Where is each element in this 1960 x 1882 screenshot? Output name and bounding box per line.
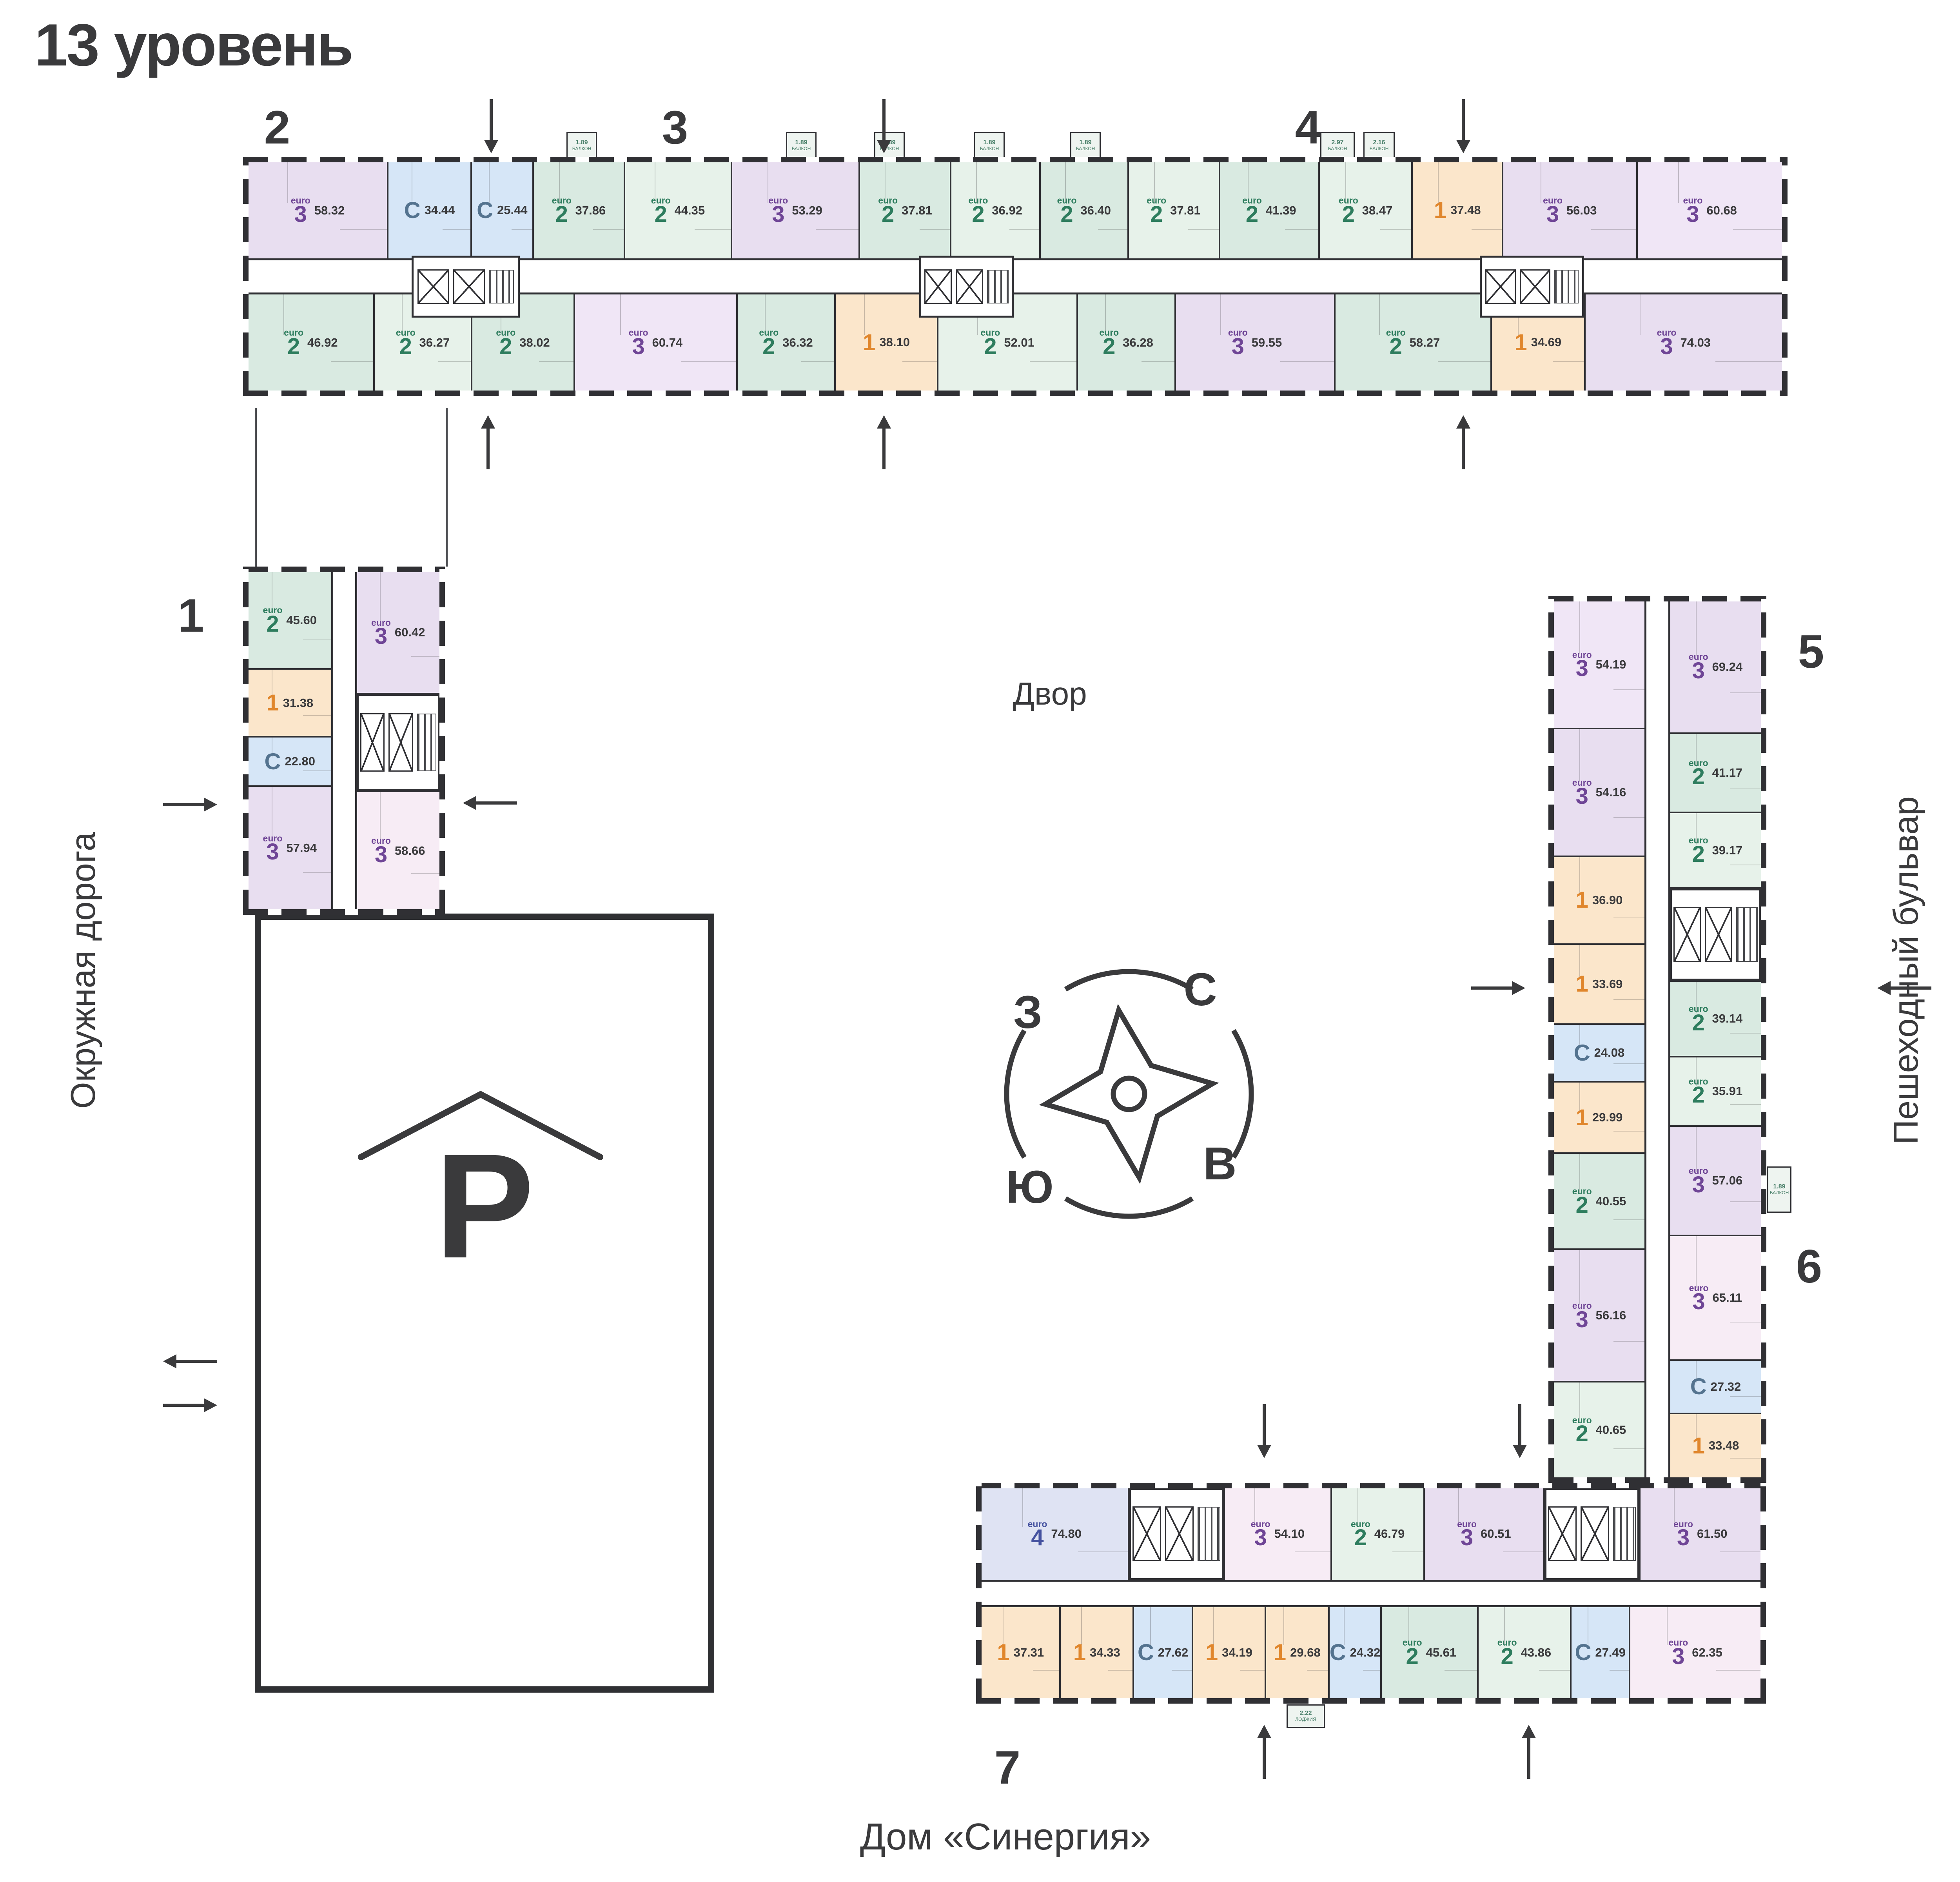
wing-connector-outline [255, 408, 448, 567]
apartment-type: 3 [1660, 337, 1673, 356]
apartment-label: euro246.79 [1351, 1520, 1405, 1548]
stair-core [412, 256, 520, 318]
apartment-label: euro236.40 [1057, 197, 1111, 224]
apartment-row: euro360.42euro358.66 [357, 572, 440, 909]
entrance-arrow-up [881, 415, 887, 469]
apartment-type: 3 [1692, 1292, 1705, 1311]
apartment-label: euro238.02 [496, 329, 550, 356]
apartment-label: 133.48 [1692, 1436, 1739, 1455]
apartment-area: 60.42 [395, 625, 425, 639]
apartment-area: 38.02 [519, 336, 550, 350]
apartment-area: 36.90 [1592, 893, 1623, 907]
section-number-3: 3 [662, 100, 688, 154]
apartment-unit[interactable]: euro354.10 [1225, 1488, 1330, 1580]
entrance-arrow-down [1517, 1404, 1523, 1458]
apartment-type: 3 [375, 845, 387, 864]
apartment-unit[interactable]: euro240.65 [1554, 1382, 1644, 1477]
apartment-unit[interactable]: euro237.81 [860, 162, 950, 258]
apartment-type: С [1330, 1643, 1346, 1662]
apartment-unit[interactable]: euro258.27 [1336, 294, 1490, 391]
apartment-unit[interactable]: 137.48 [1413, 162, 1502, 258]
apartment-area: 52.01 [1004, 336, 1034, 350]
section-number-1: 1 [178, 589, 204, 643]
apartment-area: 40.65 [1596, 1423, 1626, 1437]
apartment-label: euro357.94 [263, 835, 317, 862]
apartment-type: С [1138, 1643, 1154, 1662]
apartment-unit[interactable]: euro239.17 [1670, 813, 1761, 887]
apartment-unit[interactable]: euro361.50 [1641, 1488, 1760, 1580]
apartment-area: 65.11 [1712, 1291, 1742, 1305]
apartment-type: 2 [1692, 845, 1705, 864]
apartment-label: euro236.27 [396, 329, 450, 356]
apartment-area: 37.48 [1450, 203, 1481, 217]
courtyard-label: Двор [1013, 676, 1087, 712]
apartment-unit[interactable]: euro243.86 [1479, 1607, 1570, 1699]
apartment-label: euro369.24 [1689, 653, 1742, 680]
apartment-type: 3 [1576, 787, 1588, 806]
apartment-type: 3 [1576, 659, 1588, 678]
apartment-area: 45.60 [286, 613, 317, 627]
apartment-area: 36.27 [419, 336, 450, 350]
apartment-unit[interactable]: euro236.28 [1078, 294, 1174, 391]
entrance-arrow-left [463, 800, 517, 806]
apartment-label: 137.31 [997, 1643, 1044, 1662]
apartment-unit[interactable]: С25.44 [472, 162, 532, 258]
apartment-type: С [1690, 1377, 1707, 1396]
exterior-wall [243, 909, 445, 915]
apartment-label: euro239.17 [1689, 837, 1742, 864]
compass-east-label: В [1203, 1137, 1236, 1190]
stair-core [919, 256, 1014, 318]
apartment-unit[interactable]: euro374.03 [1586, 294, 1782, 391]
apartment-unit[interactable]: euro235.91 [1670, 1057, 1761, 1125]
apartment-area: 38.10 [879, 335, 910, 349]
apartment-label: С34.44 [404, 201, 455, 220]
apartment-area: 60.68 [1706, 203, 1737, 218]
apartment-area: 24.32 [1350, 1646, 1381, 1660]
elevator-icon [1132, 1506, 1161, 1561]
apartment-type: 2 [266, 614, 279, 634]
apartment-area: 34.33 [1090, 1646, 1120, 1660]
apartment-unit[interactable]: 136.90 [1554, 857, 1644, 943]
apartment-type: С [404, 201, 421, 220]
apartment-unit[interactable]: С34.44 [388, 162, 470, 258]
balcony: 1.89БАЛКОН [974, 132, 1005, 159]
apartment-unit[interactable]: 134.33 [1061, 1607, 1132, 1699]
apartment-type: С [1574, 1043, 1590, 1063]
apartment-unit[interactable]: euro240.55 [1554, 1154, 1644, 1248]
wing-right: euro354.19euro354.16136.90133.69С24.0812… [1548, 596, 1766, 1483]
parking-icon: Р [435, 1132, 534, 1281]
apartment-area: 43.86 [1521, 1646, 1552, 1660]
apartment-label: euro358.66 [371, 837, 425, 864]
apartment-area: 54.10 [1274, 1527, 1305, 1541]
apartment-area: 45.61 [1426, 1646, 1457, 1660]
compass-hub [1113, 1078, 1145, 1110]
exterior-wall [976, 1698, 1766, 1704]
apartment-label: euro356.16 [1572, 1302, 1626, 1329]
apartment-area: 36.28 [1123, 336, 1153, 350]
exterior-wall [1548, 596, 1554, 1483]
apartment-unit[interactable]: 129.68 [1266, 1607, 1328, 1699]
apartment-label: euro241.39 [1242, 197, 1296, 224]
apartment-type: 3 [632, 337, 645, 356]
apartment-area: 56.03 [1566, 203, 1597, 218]
section-number-6: 6 [1796, 1239, 1822, 1293]
apartment-type: 2 [499, 337, 512, 356]
stairs-icon [1554, 270, 1579, 303]
apartment-label: 129.99 [1576, 1108, 1623, 1127]
apartment-unit[interactable]: euro474.80 [982, 1488, 1128, 1580]
apartment-unit[interactable]: euro358.32 [249, 162, 387, 258]
balcony-word: БАЛКОН [572, 146, 592, 151]
stairs-icon [417, 714, 436, 771]
apartment-unit[interactable]: euro360.68 [1638, 162, 1782, 258]
apartment-unit[interactable]: euro360.42 [357, 572, 440, 693]
entrance-arrow-up [1526, 1725, 1532, 1779]
apartment-type: 2 [762, 337, 775, 356]
apartment-unit[interactable]: euro237.81 [1129, 162, 1219, 258]
apartment-label: euro354.10 [1251, 1520, 1305, 1548]
apartment-type: 2 [1692, 1013, 1705, 1032]
apartment-type: 3 [375, 627, 387, 646]
apartment-label: С22.80 [265, 752, 315, 771]
entrance-arrow-right [163, 801, 217, 808]
exterior-wall [1782, 157, 1788, 396]
section-number-2: 2 [264, 100, 290, 154]
apartment-label: euro354.19 [1572, 651, 1626, 678]
apartment-area: 46.92 [307, 336, 338, 350]
street-label-left: Окружная дорога [63, 832, 103, 1109]
apartment-unit[interactable]: euro356.03 [1503, 162, 1636, 258]
apartment-label: 134.33 [1073, 1643, 1120, 1662]
apartment-label: 134.69 [1514, 333, 1561, 352]
balcony-area: 1.89 [795, 140, 807, 146]
apartment-unit[interactable]: euro360.74 [575, 294, 736, 391]
section-number-4: 4 [1295, 100, 1321, 154]
apartment-type: 2 [1576, 1195, 1588, 1215]
apartment-label: euro365.11 [1689, 1284, 1742, 1312]
apartment-row: euro474.80euro354.10euro246.79euro360.51… [982, 1488, 1760, 1580]
entrance-arrow-up [1261, 1725, 1267, 1779]
apartment-type: 4 [1031, 1528, 1044, 1547]
apartment-area: 33.48 [1709, 1439, 1739, 1453]
apartment-unit[interactable]: euro236.92 [951, 162, 1039, 258]
apartment-label: euro246.92 [284, 329, 338, 356]
wing-left: euro245.60131.38С22.80euro357.94euro360.… [243, 567, 445, 915]
corridor [1644, 601, 1670, 1477]
balcony-word: БАЛКОН [1370, 146, 1389, 151]
apartment-unit[interactable]: С22.80 [249, 738, 331, 786]
balcony-area: 1.89 [1773, 1184, 1785, 1190]
apartment-type: С [1575, 1643, 1591, 1662]
apartment-area: 22.80 [285, 754, 315, 768]
apartment-label: 129.68 [1274, 1643, 1321, 1662]
elevator-icon [924, 269, 952, 304]
apartment-area: 60.51 [1481, 1527, 1511, 1541]
apartment-label: euro362.35 [1668, 1639, 1722, 1666]
apartment-label: euro357.06 [1689, 1167, 1742, 1194]
apartment-area: 41.17 [1712, 766, 1743, 780]
apartment-label: euro360.42 [371, 619, 425, 646]
apartment-unit[interactable]: euro245.61 [1382, 1607, 1477, 1699]
apartment-type: 3 [772, 205, 784, 224]
balcony: 2.22ЛОДЖИЯ [1287, 1704, 1325, 1728]
corridor [982, 1580, 1760, 1607]
apartment-type: С [477, 201, 493, 220]
entrance-arrow-left [1877, 985, 1931, 991]
balcony-word: БАЛКОН [980, 146, 999, 151]
apartment-area: 24.08 [1594, 1046, 1625, 1060]
apartment-area: 29.99 [1592, 1110, 1623, 1124]
balcony-area: 1.89 [575, 140, 588, 146]
apartment-unit[interactable]: euro354.16 [1554, 729, 1644, 856]
apartment-unit[interactable]: euro245.60 [249, 572, 331, 668]
apartment-type: 1 [1274, 1643, 1286, 1662]
exterior-wall [1548, 1477, 1766, 1483]
balcony-word: БАЛКОН [792, 146, 811, 151]
apartment-type: 2 [1103, 337, 1115, 356]
apartment-unit[interactable]: С24.08 [1554, 1025, 1644, 1081]
exterior-wall [1761, 596, 1766, 1483]
apartment-unit[interactable]: 133.69 [1554, 945, 1644, 1023]
apartment-area: 39.17 [1712, 843, 1743, 857]
apartment-label: euro361.50 [1673, 1520, 1727, 1548]
apartment-label: euro239.14 [1689, 1005, 1742, 1032]
balcony: 1.89БАЛКОН [1767, 1166, 1791, 1213]
exterior-wall [243, 157, 1788, 162]
apartment-type: 2 [287, 337, 300, 356]
apartment-unit[interactable]: 133.48 [1670, 1414, 1761, 1477]
compass-south-label: Ю [1006, 1161, 1054, 1214]
apartment-unit[interactable]: С27.32 [1670, 1361, 1761, 1413]
apartment-type: 3 [1677, 1528, 1690, 1547]
apartment-type: 2 [1060, 205, 1073, 224]
apartment-unit[interactable]: euro237.86 [534, 162, 624, 258]
apartment-type: 2 [1501, 1647, 1514, 1666]
apartment-label: euro359.55 [1228, 329, 1282, 356]
apartment-area: 69.24 [1712, 660, 1743, 674]
apartment-label: 134.19 [1205, 1643, 1252, 1662]
apartment-area: 40.55 [1596, 1194, 1626, 1208]
page-title: 13 уровень [34, 11, 352, 80]
apartment-unit[interactable]: С27.62 [1134, 1607, 1192, 1699]
apartment-type: 2 [1342, 205, 1355, 224]
balcony: 2.16БАЛКОН [1363, 132, 1395, 159]
apartment-label: euro240.55 [1572, 1188, 1626, 1215]
apartment-unit[interactable]: euro244.35 [625, 162, 731, 258]
apartment-label: euro245.60 [263, 607, 317, 634]
apartment-row: euro369.24euro241.17euro239.17euro239.14… [1670, 601, 1761, 1477]
apartment-unit[interactable]: euro236.32 [738, 294, 834, 391]
apartment-area: 34.19 [1222, 1646, 1252, 1660]
apartment-unit[interactable]: euro357.94 [249, 787, 331, 909]
stair-core [1545, 1488, 1639, 1580]
apartment-unit[interactable]: euro362.35 [1630, 1607, 1760, 1699]
apartment-unit[interactable]: euro360.51 [1425, 1488, 1543, 1580]
apartment-area: 37.81 [902, 203, 932, 218]
apartment-unit[interactable]: 134.19 [1193, 1607, 1265, 1699]
exterior-wall [243, 391, 1788, 396]
entrance-arrow-left [163, 1358, 217, 1364]
apartment-label: euro258.27 [1386, 329, 1440, 356]
apartment-type: 3 [266, 842, 279, 861]
apartment-type: С [265, 752, 281, 771]
exterior-wall [243, 157, 249, 396]
apartment-area: 36.32 [782, 336, 813, 350]
apartment-unit[interactable]: 129.99 [1554, 1083, 1644, 1152]
elevator-icon [1485, 269, 1516, 304]
apartment-label: 137.48 [1434, 201, 1481, 220]
apartment-type: 2 [972, 205, 984, 224]
balcony: 1.89БАЛКОН [1070, 132, 1101, 159]
apartment-label: euro360.51 [1457, 1520, 1511, 1548]
apartment-area: 35.91 [1712, 1084, 1743, 1098]
apartment-type: 1 [863, 333, 875, 352]
elevator-icon [1673, 907, 1701, 962]
apartment-label: euro236.32 [759, 329, 813, 356]
apartment-unit[interactable]: euro356.16 [1554, 1250, 1644, 1381]
apartment-unit[interactable]: euro357.06 [1670, 1127, 1761, 1235]
entrance-arrow-down [1460, 99, 1466, 153]
apartment-type: 2 [555, 205, 568, 224]
balcony-area: 1.89 [983, 140, 995, 146]
apartment-label: euro354.16 [1572, 779, 1626, 806]
entrance-arrow-up [1460, 415, 1466, 469]
apartment-unit[interactable]: С24.32 [1330, 1607, 1380, 1699]
apartment-area: 54.19 [1596, 658, 1626, 672]
apartment-unit[interactable]: 131.38 [249, 670, 331, 736]
apartment-unit[interactable]: euro354.19 [1554, 601, 1644, 728]
section-number-5: 5 [1798, 625, 1824, 679]
balcony-word: БАЛКОН [1328, 146, 1347, 151]
apartment-label: euro236.92 [969, 197, 1022, 224]
balcony-area: 2.97 [1331, 140, 1343, 146]
apartment-unit[interactable]: euro241.17 [1670, 734, 1761, 812]
building-name-label: Дом «Синергия» [860, 1815, 1151, 1858]
apartment-type: 2 [984, 337, 996, 356]
apartment-area: 39.14 [1712, 1012, 1743, 1026]
apartment-type: 2 [399, 337, 412, 356]
apartment-area: 58.32 [314, 203, 345, 218]
apartment-area: 27.62 [1158, 1646, 1189, 1660]
apartment-area: 57.94 [286, 841, 317, 855]
stairs-icon [1736, 907, 1758, 962]
apartment-type: 1 [1514, 333, 1527, 352]
apartment-label: С24.08 [1574, 1043, 1624, 1063]
apartment-unit[interactable]: euro365.11 [1670, 1236, 1761, 1359]
apartment-type: 2 [1390, 337, 1402, 356]
apartment-unit[interactable]: 137.31 [982, 1607, 1059, 1699]
balcony-word: ЛОДЖИЯ [1295, 1717, 1316, 1722]
apartment-unit[interactable]: euro353.29 [732, 162, 859, 258]
apartment-type: 1 [266, 693, 279, 712]
compass-north-label: С [1183, 963, 1217, 1016]
apartment-unit[interactable]: euro239.14 [1670, 982, 1761, 1056]
elevator-icon [388, 713, 413, 771]
stair-core [1129, 1488, 1223, 1580]
balcony: 1.89БАЛКОН [566, 132, 597, 159]
apartment-area: 36.40 [1080, 203, 1111, 218]
apartment-type: 3 [1692, 661, 1705, 680]
apartment-type: 3 [1672, 1647, 1684, 1666]
apartment-area: 31.38 [283, 696, 314, 710]
balcony: 2.97БАЛКОН [1320, 132, 1355, 159]
apartment-label: euro237.81 [1147, 197, 1200, 224]
apartment-label: euro235.91 [1689, 1078, 1742, 1105]
apartment-unit[interactable]: euro246.79 [1332, 1488, 1423, 1580]
apartment-row: 137.31134.33С27.62134.19129.68С24.32euro… [982, 1607, 1760, 1699]
apartment-label: 131.38 [266, 693, 313, 712]
apartment-type: 1 [1576, 974, 1588, 994]
apartment-type: 2 [1150, 205, 1163, 224]
apartment-type: 2 [655, 205, 667, 224]
exterior-wall [439, 567, 445, 915]
apartment-label: euro360.68 [1683, 197, 1737, 224]
exterior-wall [243, 567, 445, 572]
apartment-unit[interactable]: С27.49 [1572, 1607, 1629, 1699]
wing-bottom: euro474.80euro354.10euro246.79euro360.51… [976, 1483, 1766, 1704]
apartment-type: 2 [1692, 767, 1705, 786]
apartment-label: euro358.32 [291, 197, 345, 224]
exterior-wall [976, 1483, 1766, 1488]
apartment-type: 3 [1461, 1528, 1473, 1547]
exterior-wall [1760, 1483, 1766, 1704]
apartment-type: 1 [1434, 201, 1446, 220]
apartment-row: euro358.32С34.44С25.44euro237.86euro244.… [249, 162, 1782, 258]
apartment-label: euro356.03 [1543, 197, 1597, 224]
street-label-right: Пешеходный бульвар [1886, 796, 1926, 1144]
apartment-type: 3 [1546, 205, 1559, 224]
apartment-label: euro244.35 [651, 197, 705, 224]
apartment-label: euro374.03 [1657, 329, 1711, 356]
apartment-unit[interactable]: euro359.55 [1176, 294, 1334, 391]
elevator-icon [453, 269, 485, 304]
apartment-label: euro360.74 [629, 329, 682, 356]
balcony-area: 2.16 [1373, 140, 1385, 146]
exterior-wall [243, 567, 249, 915]
apartment-area: 29.68 [1290, 1646, 1321, 1660]
stair-core [357, 694, 440, 790]
apartment-label: 138.10 [863, 333, 910, 352]
apartment-type: 2 [1354, 1528, 1367, 1547]
apartment-unit[interactable]: euro238.47 [1320, 162, 1411, 258]
apartment-type: 2 [882, 205, 894, 224]
apartment-area: 27.32 [1711, 1380, 1741, 1394]
apartment-unit[interactable]: euro236.40 [1041, 162, 1127, 258]
apartment-type: 3 [1692, 1175, 1705, 1194]
elevator-icon [1165, 1506, 1194, 1561]
stairs-icon [489, 270, 514, 303]
apartment-area: 46.79 [1374, 1527, 1405, 1541]
stairs-icon [987, 270, 1009, 303]
apartment-type: 1 [1576, 890, 1588, 910]
apartment-unit[interactable]: euro246.92 [249, 294, 373, 391]
stairs-icon [1198, 1507, 1220, 1561]
apartment-label: euro236.28 [1099, 329, 1153, 356]
corridor [331, 572, 357, 909]
apartment-area: 58.27 [1410, 336, 1440, 350]
apartment-label: С27.49 [1575, 1643, 1625, 1662]
floor-plan-canvas: 13 уровень Двор Окружная дорога Пешеходн… [0, 0, 1960, 1882]
apartment-type: 3 [1232, 337, 1244, 356]
apartment-unit[interactable]: euro241.39 [1220, 162, 1319, 258]
apartment-area: 27.49 [1595, 1646, 1626, 1660]
apartment-unit[interactable]: euro358.66 [357, 792, 440, 909]
apartment-area: 74.03 [1680, 336, 1711, 350]
apartment-unit[interactable]: euro369.24 [1670, 601, 1761, 732]
apartment-type: 3 [1686, 205, 1699, 224]
